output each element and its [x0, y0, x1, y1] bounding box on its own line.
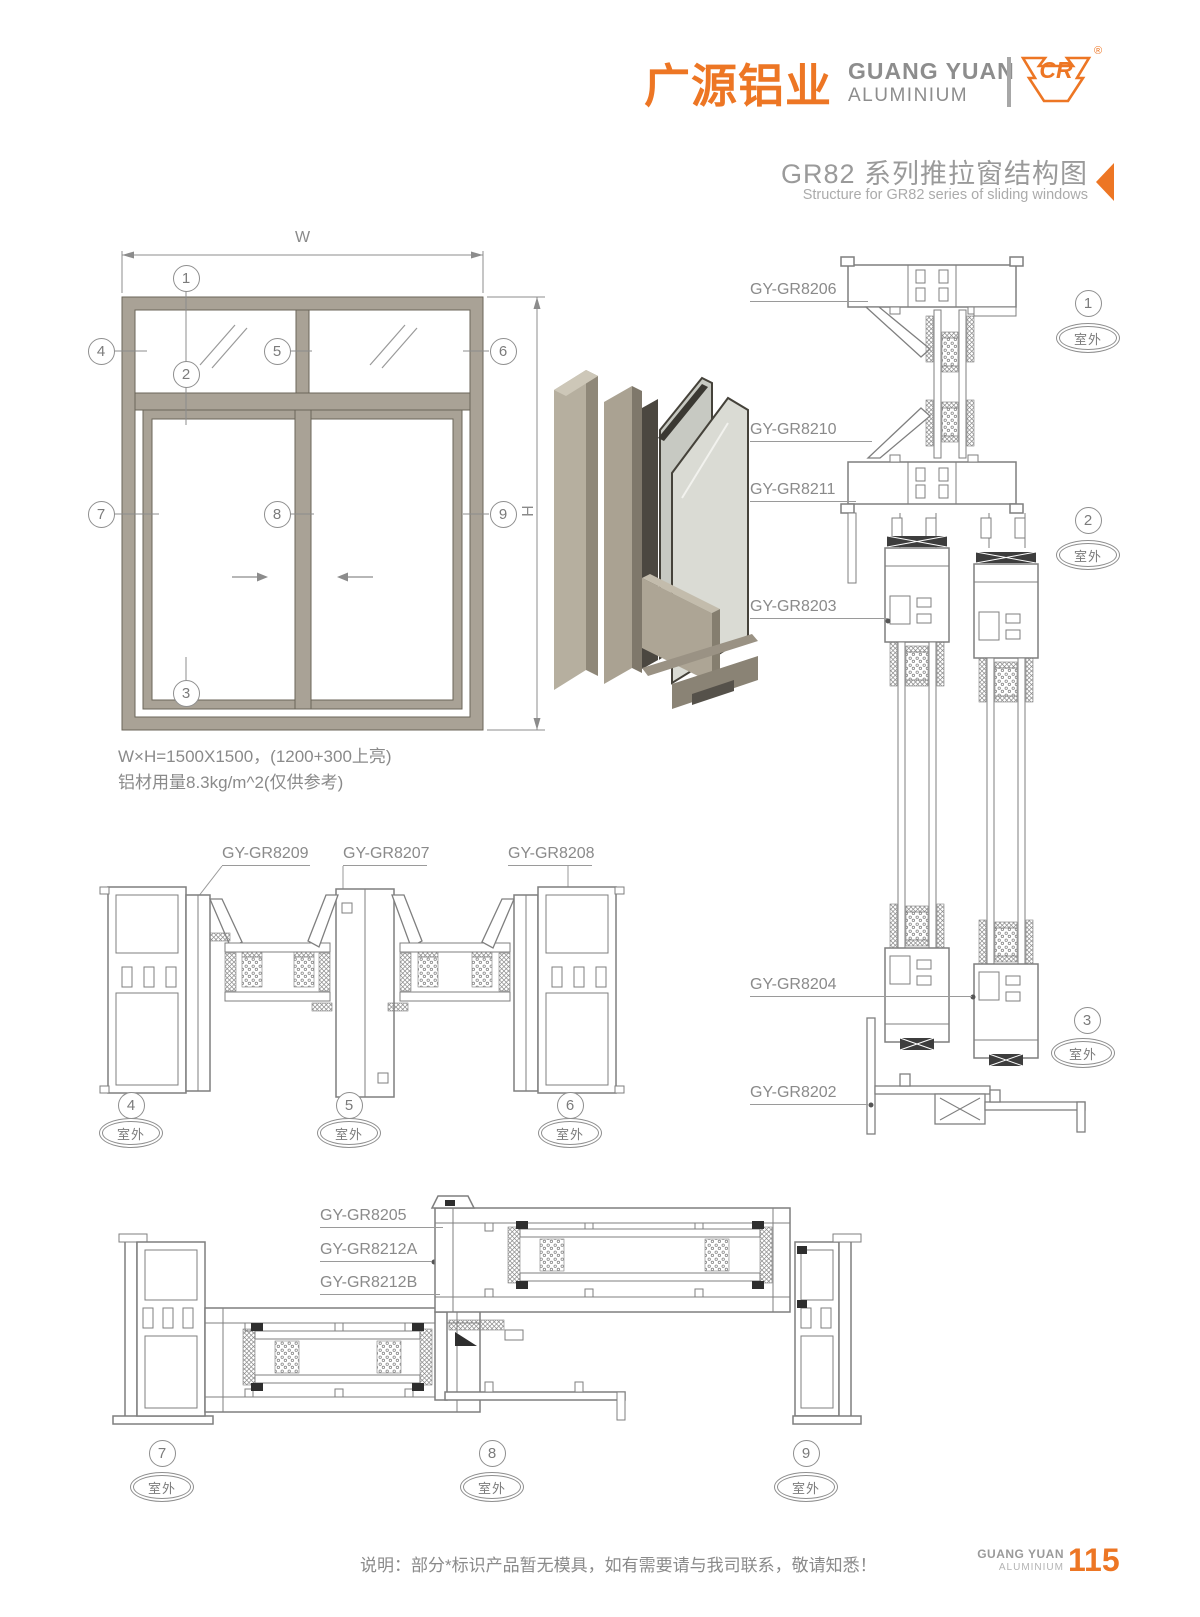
bottom-horizontal-section-drawing	[105, 1180, 865, 1430]
label-gy-gr8211: GY-GR8211	[750, 480, 856, 502]
label-gy-gr8203: GY-GR8203	[750, 597, 888, 619]
vertical-section-drawing	[740, 250, 1100, 1150]
callout-6: 6	[490, 338, 517, 365]
logo-divider	[1007, 57, 1011, 107]
footer-note: 说明：部分*标识产品暂无模具，如有需要请与我司联系，敬请知悉！	[360, 1551, 877, 1576]
brand-name-english: GUANG YUAN	[848, 58, 1015, 85]
registered-trademark-icon: ®	[1094, 45, 1102, 57]
label-gy-gr8212b: GY-GR8212B	[320, 1273, 440, 1295]
right-jamb	[793, 1234, 861, 1424]
callout-3: 3	[173, 680, 200, 707]
label-gy-gr8202: GY-GR8202	[750, 1083, 868, 1105]
page-subtitle: Structure for GR82 series of sliding win…	[740, 187, 1088, 203]
section-callout-6: 6	[557, 1092, 584, 1119]
interlock	[336, 889, 394, 1097]
profile-3d-render	[542, 338, 762, 718]
elevation-drawing	[85, 225, 555, 745]
callout-4: 4	[88, 338, 115, 365]
section-callout-7: 7	[149, 1440, 176, 1467]
title-arrow-icon	[1096, 163, 1114, 201]
section-callout-1: 1	[1075, 290, 1102, 317]
outdoor-badge-5: 室外	[317, 1118, 381, 1148]
callout-8: 8	[264, 501, 291, 528]
footer-brand-line1: GUANG YUAN	[944, 1547, 1064, 1561]
outdoor-badge-9: 室外	[774, 1472, 838, 1502]
outdoor-badge-7: 室外	[130, 1472, 194, 1502]
brand-subtitle-english: ALUMINIUM	[848, 85, 968, 107]
dim-height-label: H	[517, 505, 535, 517]
outdoor-badge-8: 室外	[460, 1472, 524, 1502]
brand-name-chinese: 广源铝业	[644, 50, 832, 116]
outdoor-badge-1: 室外	[1056, 323, 1120, 353]
page-number: 115	[1068, 1542, 1120, 1579]
glass-unit-2	[388, 943, 510, 1011]
footer-brand-line2: ALUMINIUM	[944, 1562, 1064, 1573]
sash-column	[885, 536, 949, 1050]
left-jamb	[113, 1234, 213, 1424]
callout-5: 5	[264, 338, 291, 365]
section-callout-4: 4	[118, 1092, 145, 1119]
label-gy-gr8206: GY-GR8206	[750, 280, 868, 302]
label-gy-gr8207: GY-GR8207	[343, 844, 427, 866]
outdoor-badge-4: 室外	[99, 1118, 163, 1148]
label-gy-gr8208: GY-GR8208	[508, 844, 592, 866]
label-gy-gr8209: GY-GR8209	[222, 844, 310, 866]
upper-glazing	[926, 310, 974, 458]
callout-1: 1	[173, 265, 200, 292]
callout-2: 2	[173, 361, 200, 388]
label-gy-gr8212a: GY-GR8212A	[320, 1240, 432, 1262]
section-callout-3: 3	[1074, 1007, 1101, 1034]
dim-width-label: W	[295, 229, 310, 247]
section-callout-9: 9	[793, 1440, 820, 1467]
catalog-page: 广源铝业 GUANG YUAN ALUMINIUM CR ® GR82 系列推拉…	[0, 0, 1200, 1617]
transom-frame	[841, 462, 1023, 513]
right-jamb	[514, 887, 624, 1093]
label-gy-gr8210: GY-GR8210	[750, 420, 872, 442]
section-callout-8: 8	[479, 1440, 506, 1467]
spec-line-1: W×H=1500X1500，(1200+300上亮)	[118, 744, 392, 770]
label-gy-gr8204: GY-GR8204	[750, 975, 972, 997]
label-gy-gr8205: GY-GR8205	[320, 1206, 443, 1228]
section-callout-5: 5	[336, 1092, 363, 1119]
cr-logo-letters: CR	[1034, 57, 1078, 84]
spec-line-2: 铝材用量8.3kg/m^2(仅供参考)	[118, 770, 343, 796]
outdoor-badge-2: 室外	[1056, 540, 1120, 570]
right-sash	[435, 1208, 790, 1312]
outdoor-badge-6: 室外	[538, 1118, 602, 1148]
left-jamb	[100, 887, 210, 1093]
page-title: GR82 系列推拉窗结构图	[740, 152, 1088, 191]
callout-7: 7	[88, 501, 115, 528]
section-callout-2: 2	[1075, 507, 1102, 534]
head-frame	[841, 257, 1023, 307]
callout-9: 9	[490, 501, 517, 528]
outdoor-badge-3: 室外	[1051, 1038, 1115, 1068]
